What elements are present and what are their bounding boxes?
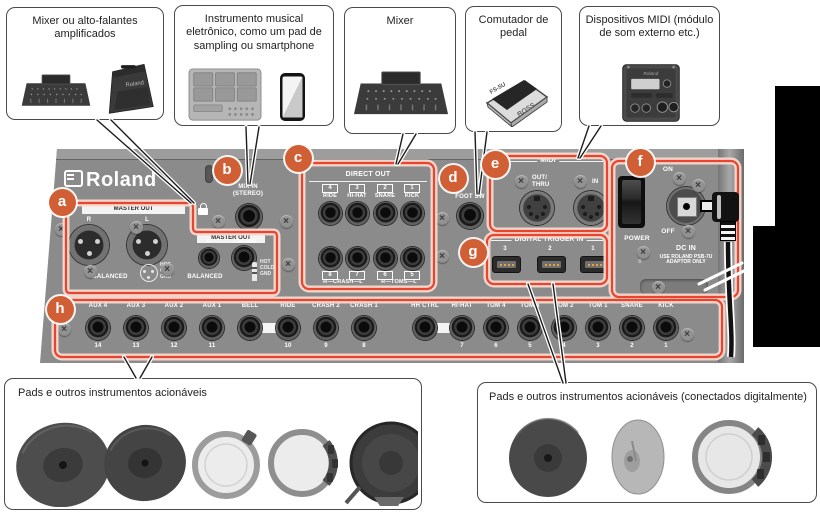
midi-out-thru-label-2: THRU xyxy=(532,182,549,188)
screw-icon xyxy=(436,212,449,225)
adaptor-note-2: ADAPTOR ONLY xyxy=(666,259,705,265)
midi-in-jack xyxy=(574,191,608,225)
screw-icon xyxy=(515,175,528,188)
xlr-r-label: R xyxy=(87,217,92,223)
box-mixer-label: Mixer xyxy=(345,8,455,28)
trigger-jack-number: 3 xyxy=(596,343,600,349)
direct-out-jack-bottom xyxy=(319,247,342,270)
trigger-jack-number: 10 xyxy=(284,343,291,349)
box-pads-digital: Pads e outros instrumentos acionáveis (c… xyxy=(477,382,817,503)
digital-trigger-port-number: 1 xyxy=(591,246,595,252)
trigger-jack-label: TOM 1 xyxy=(588,303,607,309)
callout-h: h xyxy=(47,296,74,323)
master-out-r-jack xyxy=(199,248,219,268)
box-foot-switch-label: Comutador de pedal xyxy=(466,7,561,41)
screw-icon xyxy=(682,225,695,238)
direct-out-jack-label: SNARE xyxy=(375,193,395,199)
box-foot-switch: Comutador de pedal FS-5U BOSS xyxy=(465,6,562,132)
direct-out-jack-bottom xyxy=(374,247,397,270)
trigger-jack-number: 13 xyxy=(132,343,139,349)
box-mixer-speakers: Mixer ou alto-falantes amplificados Rola… xyxy=(6,7,164,120)
trigger-jack-label: BELL xyxy=(242,303,258,309)
callout-a: a xyxy=(49,189,76,216)
direct-out-number-box: 2 xyxy=(377,184,393,193)
balanced-label-xlr: BALANCED xyxy=(92,274,127,280)
trigger-jack-number: 8 xyxy=(362,343,366,349)
roland-logo: Roland xyxy=(64,169,157,192)
direct-out-jack-top xyxy=(346,202,369,225)
master-out-xlr-header: MASTER OUT xyxy=(82,205,185,214)
connection-diagram: Mixer ou alto-falantes amplificados Rola… xyxy=(0,0,820,514)
direct-out-jack-top xyxy=(319,202,342,225)
screw-icon xyxy=(58,323,71,336)
roland-logo-mark xyxy=(64,170,83,187)
balanced-label-trs: BALANCED xyxy=(187,274,222,280)
trigger-jack-label: SNARE xyxy=(621,303,643,309)
box-mixer-speakers-label: Mixer ou alto-falantes amplificados xyxy=(7,8,163,42)
power-label: POWER xyxy=(624,235,650,242)
trigger-jack-label: AUX 3 xyxy=(127,303,146,309)
trigger-jack xyxy=(238,316,262,340)
trigger-jack xyxy=(586,316,610,340)
trigger-jack-label: HI-HAT xyxy=(451,303,472,309)
trigger-jack-number: 6 xyxy=(494,343,498,349)
direct-out-number-box: 7 xyxy=(349,271,365,280)
trigger-jack-number: 4 xyxy=(562,343,566,349)
trigger-jack-label: TOM 3 xyxy=(520,303,539,309)
screw-icon xyxy=(130,221,143,234)
callout-d: d xyxy=(440,165,467,192)
trigger-jack-number: 7 xyxy=(460,343,464,349)
mixer-image xyxy=(21,68,91,114)
trigger-jack xyxy=(86,316,110,340)
screw-icon xyxy=(652,281,665,294)
midi-header: MIDI xyxy=(537,157,559,164)
trigger-jack xyxy=(518,316,542,340)
trigger-jack xyxy=(352,316,376,340)
direct-out-number-box: 3 xyxy=(349,184,365,193)
digital-trigger-port xyxy=(492,256,521,273)
brand-text: Roland xyxy=(86,169,157,191)
dc-in-hole xyxy=(683,203,690,210)
trigger-jack-number: 14 xyxy=(94,343,101,349)
sound-module-image: Roland xyxy=(618,63,684,123)
trigger-jack xyxy=(413,316,437,340)
dc-in-label: DC IN xyxy=(676,245,696,252)
screw-icon xyxy=(673,172,686,185)
foot-switch-image: FS-5U BOSS xyxy=(479,61,551,127)
callout-g: g xyxy=(460,239,487,266)
trigger-jack xyxy=(620,316,644,340)
box-midi-devices: Dispositivos MIDI (módulo de som externo… xyxy=(579,6,720,126)
box-electronic-instrument: Instrumento musical eletrônico, como um … xyxy=(174,5,334,126)
direct-out-jack-bottom xyxy=(401,247,424,270)
adaptor-silhouette xyxy=(753,226,820,347)
trigger-jack xyxy=(276,316,300,340)
direct-out-jack-label: KICK xyxy=(405,193,419,199)
trs-r-label: R xyxy=(207,239,211,245)
mix-in-label-1: MIX IN xyxy=(238,184,258,190)
amplified-speaker-image: Roland xyxy=(101,60,159,120)
dc-plug-body xyxy=(712,192,739,222)
trigger-jack-label: TOM 4 xyxy=(486,303,505,309)
trigger-jack xyxy=(484,316,508,340)
smartphone-image xyxy=(279,72,306,122)
hhctrl-hihat-link-bar xyxy=(436,323,451,333)
trigger-jack xyxy=(654,316,678,340)
xlr-l-label: L xyxy=(145,217,149,223)
trigger-jack-label: CRASH 1 xyxy=(350,303,378,309)
direct-out-jack-top xyxy=(401,202,424,225)
box-pads-digital-label: Pads e outros instrumentos acionáveis (c… xyxy=(478,383,816,403)
power-on-label: ON xyxy=(663,166,673,173)
direct-out-rule xyxy=(309,181,427,182)
direct-out-jack-label: RIDE xyxy=(323,193,337,199)
callout-b: b xyxy=(214,157,241,184)
trigger-jack-number: 11 xyxy=(209,343,216,349)
screw-icon xyxy=(84,265,97,278)
trigger-jack xyxy=(162,316,186,340)
security-slot xyxy=(205,165,213,183)
trigger-jack-label: AUX 4 xyxy=(89,303,108,309)
screw-icon xyxy=(161,263,174,276)
trigger-jack-number: 1 xyxy=(664,343,668,349)
pads-digital-images xyxy=(486,417,810,499)
xlr-jack-r xyxy=(69,225,109,265)
mix-in-label-2: (STEREO) xyxy=(233,191,263,197)
trigger-jack xyxy=(552,316,576,340)
screw-icon xyxy=(692,179,705,192)
ground-screw xyxy=(637,246,650,259)
trs-plug-labels: HOT COLD GND xyxy=(260,259,274,277)
trigger-jack-number: 5 xyxy=(528,343,532,349)
mix-in-jack xyxy=(236,204,262,230)
bell-ride-link-bar xyxy=(261,323,277,333)
dc-plug-strain-relief xyxy=(720,221,736,241)
sampling-pad-image xyxy=(187,68,263,122)
foot-sw-label: FOOT SW xyxy=(455,194,484,200)
direct-out-number-box: 5 xyxy=(404,271,420,280)
panel-recess xyxy=(640,279,708,295)
trigger-jack-label: HH CTRL xyxy=(411,303,439,309)
trigger-jack-label: KICK xyxy=(658,303,673,309)
direct-out-jack-top xyxy=(374,202,397,225)
trigger-jack xyxy=(200,316,224,340)
trigger-jack-number: 2 xyxy=(630,343,634,349)
box-pads-analog: Pads e outros instrumentos acionáveis xyxy=(4,378,422,510)
trigger-jack-number: 9 xyxy=(324,343,328,349)
midi-in-label: IN xyxy=(592,179,598,185)
trigger-jack-label: RIDE xyxy=(280,303,295,309)
direct-out-number-box: 8 xyxy=(322,271,338,280)
adaptor-silhouette xyxy=(775,86,820,227)
foot-sw-jack xyxy=(457,203,483,229)
trigger-jack-label: CRASH 2 xyxy=(312,303,340,309)
trigger-jack-label: TOM 2 xyxy=(554,303,573,309)
power-switch xyxy=(618,176,645,228)
lock-icon xyxy=(198,208,208,215)
power-off-label: OFF xyxy=(661,228,675,235)
mixer-image xyxy=(353,64,449,124)
screw-icon xyxy=(282,258,295,271)
direct-out-number-box: 6 xyxy=(377,271,393,280)
screw-icon xyxy=(280,215,293,228)
direct-out-jack-label: HI-HAT xyxy=(347,193,366,199)
trigger-jack xyxy=(450,316,474,340)
screw-icon xyxy=(55,223,68,236)
box-electronic-instrument-label: Instrumento musical eletrônico, como um … xyxy=(175,6,333,53)
digital-trigger-port-number: 3 xyxy=(503,246,507,252)
trigger-jack xyxy=(124,316,148,340)
trigger-jack-label: AUX 2 xyxy=(165,303,184,309)
box-mixer: Mixer xyxy=(344,7,456,134)
screw-icon xyxy=(574,175,587,188)
callout-c: c xyxy=(285,145,312,172)
screw-icon xyxy=(681,328,694,341)
callout-f: f xyxy=(627,149,654,176)
screw-icon xyxy=(212,215,225,228)
pads-analog-images xyxy=(8,415,418,507)
callout-e: e xyxy=(482,151,509,178)
ground-symbol: ≡ xyxy=(638,259,642,265)
trigger-jack xyxy=(314,316,338,340)
panel-right-edge xyxy=(718,149,744,363)
midi-out-thru-label-1: OUT/ xyxy=(532,175,547,181)
trs-lmono-label: L/MONO xyxy=(233,239,256,245)
digital-trigger-port xyxy=(580,256,609,273)
trigger-jack-number: 12 xyxy=(170,343,177,349)
direct-out-number-box: 1 xyxy=(404,184,420,193)
direct-out-number-box: 4 xyxy=(322,184,338,193)
digital-trigger-port xyxy=(537,256,566,273)
trs-plug-diagram xyxy=(252,262,257,281)
screw-icon xyxy=(436,250,449,263)
box-pads-analog-label: Pads e outros instrumentos acionáveis xyxy=(5,379,421,399)
digital-trigger-port-number: 2 xyxy=(548,246,552,252)
trigger-jack-label: AUX 1 xyxy=(203,303,222,309)
svg-text:Roland: Roland xyxy=(643,71,658,76)
box-midi-devices-label: Dispositivos MIDI (módulo de som externo… xyxy=(580,7,719,41)
digital-trigger-header: DIGITAL TRIGGER IN xyxy=(512,236,587,243)
direct-out-jack-bottom xyxy=(346,247,369,270)
direct-out-header: DIRECT OUT xyxy=(346,171,391,178)
xlr-wiring-diagram xyxy=(140,264,158,282)
midi-out-thru-jack xyxy=(520,191,554,225)
